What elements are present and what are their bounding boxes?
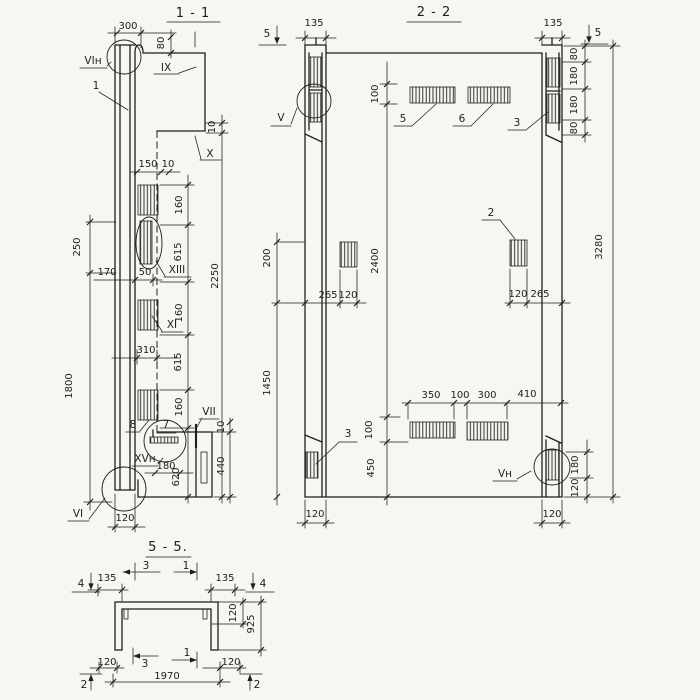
lifting-loop: [140, 221, 152, 264]
section-title: 1 - 1: [176, 6, 211, 21]
dim-200: 200: [262, 248, 273, 267]
rib-plate: [547, 94, 560, 123]
dim-1450: 1450: [262, 370, 273, 395]
dim-615a: 615: [173, 242, 184, 261]
embedded-bar-6: [468, 87, 510, 103]
callout-5: 5: [400, 113, 407, 125]
dim-450: 450: [366, 458, 377, 477]
dim-300: 300: [477, 390, 496, 401]
rib-plate: [547, 58, 560, 87]
embedded-bar: [410, 422, 455, 438]
dim-120-bottom-right: 120: [221, 657, 240, 668]
dim-135-right: 135: [215, 573, 234, 584]
dim-440: 440: [216, 456, 227, 475]
rib-plate: [309, 57, 322, 87]
drawing-sheet: 1 - 1 300 80 VIн 1 IX 150 10 10 X 160 61…: [0, 0, 700, 700]
dim-10a: 10: [162, 159, 175, 170]
callout-6: 6: [459, 113, 466, 125]
cut-mark-2-left: 2: [81, 679, 88, 691]
callout-xvn: XVн: [134, 453, 155, 465]
dim-265-right: 265: [530, 289, 549, 300]
callout-x: X: [206, 148, 213, 160]
callout-vn: Vн: [498, 468, 512, 480]
cut-mark-4-left: 4: [78, 578, 85, 590]
section-title: 5 - 5.: [148, 540, 188, 555]
dim-120-bottom-right: 120: [542, 509, 561, 520]
dim-615b: 615: [173, 352, 184, 371]
callout-xiii: XIII: [169, 264, 185, 276]
embedded-bar-5: [410, 87, 455, 103]
dim-120-bottom-left: 120: [305, 509, 324, 520]
dim-160a: 160: [174, 195, 185, 214]
dim-100-mid: 100: [450, 390, 469, 401]
rib-plate: [546, 450, 559, 480]
dim-120-left-a: 120: [338, 290, 357, 301]
dim-3280: 3280: [594, 234, 605, 259]
embedded-plate-2: [510, 240, 527, 266]
dim-10c: 10: [216, 421, 227, 434]
dim-180c: 180: [570, 455, 581, 474]
dim-120-right-a: 120: [508, 289, 527, 300]
embedded-plate: [340, 242, 357, 267]
rib-plate: [306, 452, 318, 478]
dim-135-left: 135: [97, 573, 116, 584]
dim-135-right: 135: [543, 18, 562, 29]
dim-265-left: 265: [318, 290, 337, 301]
callout-3-top: 3: [514, 117, 521, 129]
cut-mark-4-right: 4: [260, 578, 267, 590]
embedded-bar: [467, 422, 508, 440]
dim-120-top: 120: [228, 603, 239, 622]
dim-180b: 180: [569, 95, 580, 114]
callout-vii: VII: [202, 406, 215, 418]
embedded-plate: [138, 390, 158, 420]
callout-1: 1: [93, 80, 100, 92]
cut-mark-2-right: 2: [254, 679, 261, 691]
dim-180: 180: [156, 461, 175, 472]
callout-3-bottom: 3: [345, 428, 352, 440]
anchor-plate: [150, 437, 178, 443]
dim-180a: 180: [569, 66, 580, 85]
dim-300: 300: [118, 21, 137, 32]
dim-135-left: 135: [304, 18, 323, 29]
dim-120-right-b: 120: [570, 478, 581, 497]
callout-vi: VI: [73, 508, 83, 520]
dim-925: 925: [246, 614, 257, 633]
dim-100-top: 100: [370, 84, 381, 103]
callout-v: V: [277, 112, 285, 124]
dim-250: 250: [72, 237, 83, 256]
dim-150: 150: [138, 159, 157, 170]
dim-2250: 2250: [210, 263, 221, 288]
dim-310: 310: [136, 345, 155, 356]
cut-mark-5-left: 5: [264, 28, 271, 40]
dim-410: 410: [517, 389, 536, 400]
embedded-plate: [138, 185, 158, 215]
drawing-canvas: 1 - 1 300 80 VIн 1 IX 150 10 10 X 160 61…: [0, 0, 700, 700]
callout-2: 2: [488, 207, 495, 219]
cut-mark-5-right: 5: [595, 27, 602, 39]
dim-50: 50: [139, 267, 152, 278]
dim-2400: 2400: [370, 248, 381, 273]
section-title: 2 - 2: [417, 5, 452, 20]
dim-80: 80: [156, 37, 167, 50]
cut-mark-3-top: 3: [143, 560, 150, 572]
dim-100-bottom: 100: [364, 420, 375, 439]
cut-mark-1-bottom: 1: [184, 647, 191, 659]
dim-1970: 1970: [154, 671, 179, 682]
dim-120: 120: [115, 513, 134, 524]
embedded-plate: [138, 300, 158, 330]
dim-1800: 1800: [64, 373, 75, 398]
dim-160c: 160: [174, 397, 185, 416]
callout-xi: XI: [167, 319, 177, 331]
paper-background: [0, 0, 700, 700]
cut-mark-1-top: 1: [183, 560, 190, 572]
dim-80b: 80: [569, 122, 580, 135]
dim-170: 170: [97, 267, 116, 278]
callout-8: 8: [130, 419, 137, 431]
dim-80a: 80: [569, 48, 580, 61]
dim-10b: 10: [207, 121, 218, 134]
callout-7: 7: [163, 419, 170, 431]
dim-350: 350: [421, 390, 440, 401]
cut-mark-3-bottom: 3: [142, 658, 149, 670]
callout-vin: VIн: [84, 55, 101, 67]
dim-120-bottom-left: 120: [97, 657, 116, 668]
callout-ix: IX: [161, 62, 171, 74]
